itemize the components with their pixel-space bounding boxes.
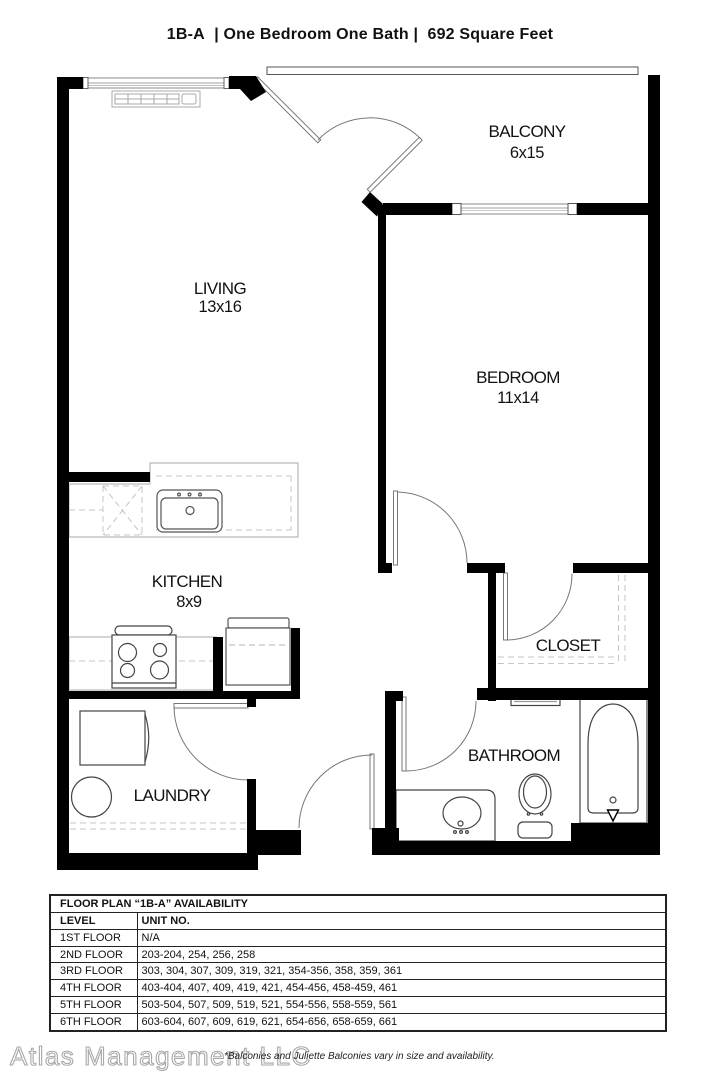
svg-text:BEDROOM: BEDROOM xyxy=(476,368,560,387)
svg-text:CLOSET: CLOSET xyxy=(536,636,601,655)
svg-text:13x16: 13x16 xyxy=(199,298,242,316)
svg-text:8x9: 8x9 xyxy=(176,593,202,611)
svg-text:6x15: 6x15 xyxy=(510,144,544,162)
svg-text:BALCONY: BALCONY xyxy=(488,122,565,141)
svg-text:KITCHEN: KITCHEN xyxy=(152,572,222,591)
svg-text:LIVING: LIVING xyxy=(194,279,246,298)
svg-text:11x14: 11x14 xyxy=(497,389,539,407)
svg-text:LAUNDRY: LAUNDRY xyxy=(134,786,211,805)
svg-text:BATHROOM: BATHROOM xyxy=(468,746,560,765)
